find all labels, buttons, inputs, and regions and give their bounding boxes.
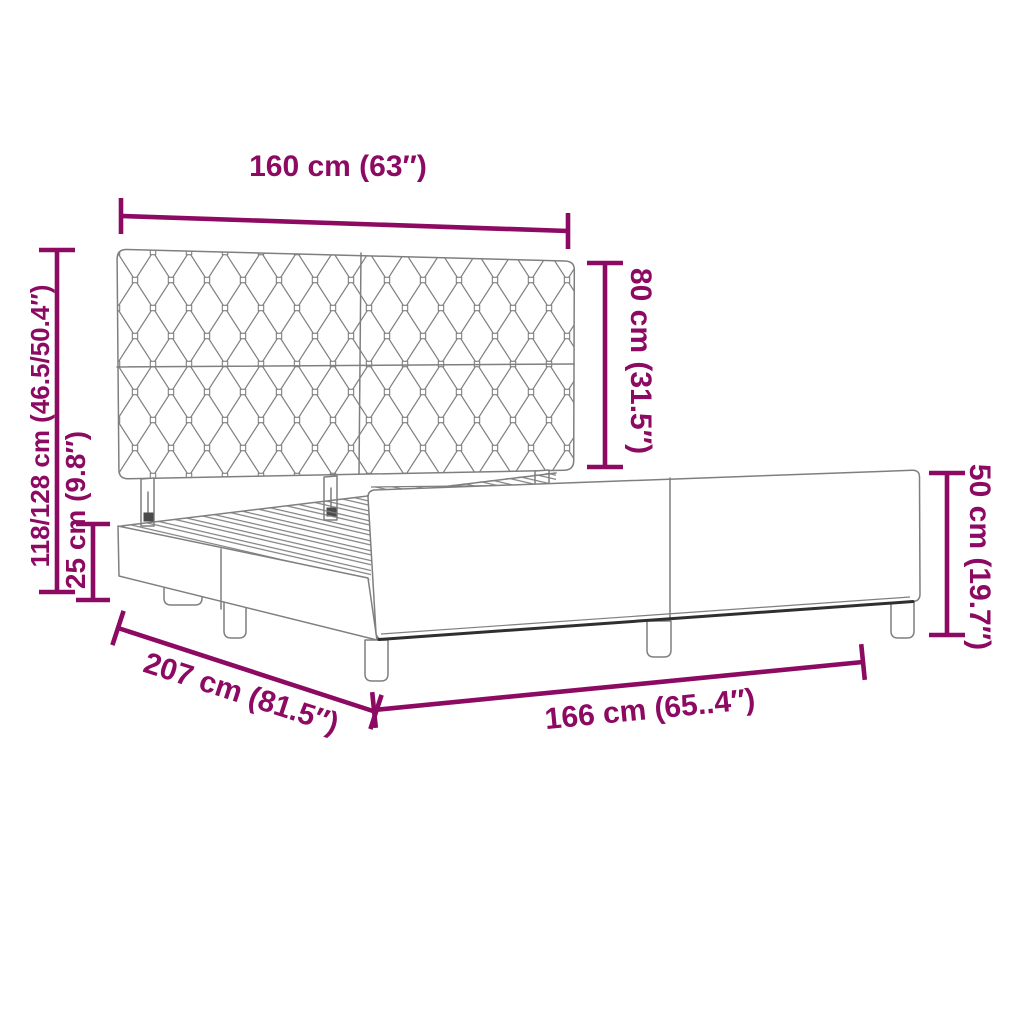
footboard — [368, 470, 920, 639]
bed-frame-dimension-diagram: 160 cm (63″) 80 cm (31.5″) 118/128 cm (4… — [0, 0, 1024, 1024]
dimension-label-overall-height: 118/128 cm (46.5/50.4″) — [27, 285, 53, 568]
dimension-label-footboard-height: 50 cm (19.7″) — [964, 464, 994, 650]
dimension-line-footboard-height — [929, 473, 965, 635]
dimension-label-headboard-width: 160 cm (63″) — [249, 152, 427, 182]
dimension-label-headboard-height: 80 cm (31.5″) — [625, 268, 655, 454]
dimension-line-headboard-width — [121, 198, 568, 249]
headboard — [117, 250, 574, 479]
dimension-label-base-height: 25 cm (9.8″) — [62, 431, 90, 589]
dimension-line-headboard-height — [587, 263, 623, 467]
bed-frame-drawing — [0, 0, 1024, 1024]
